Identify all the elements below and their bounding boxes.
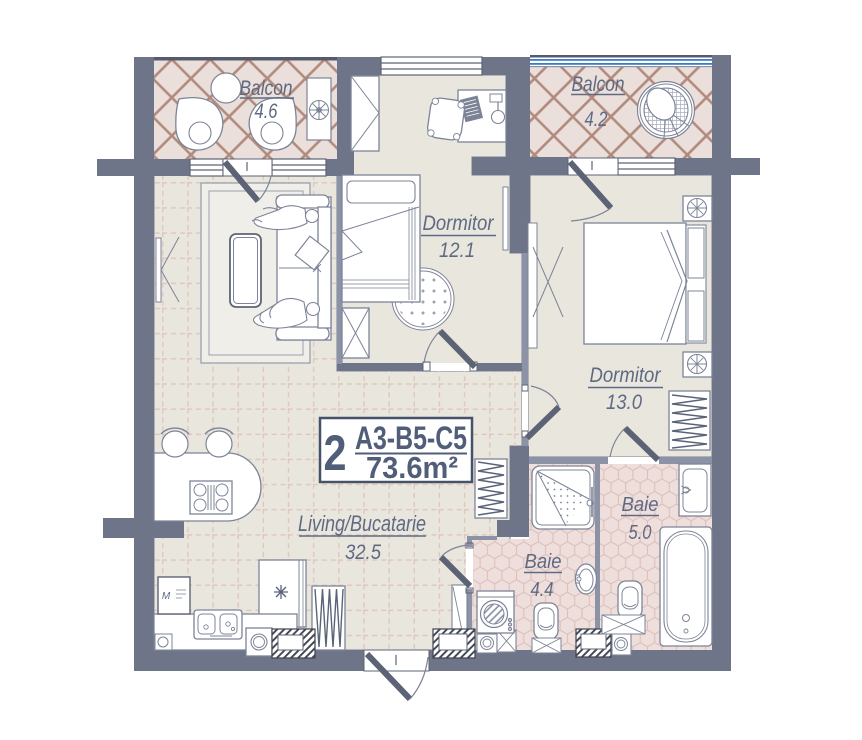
svg-text:73.6m²: 73.6m²	[366, 450, 458, 485]
svg-text:Dormitor: Dormitor	[423, 212, 495, 235]
svg-text:Dormitor: Dormitor	[590, 364, 662, 387]
svg-text:Balcon: Balcon	[240, 77, 293, 100]
svg-text:4.6: 4.6	[255, 100, 278, 123]
svg-text:13.0: 13.0	[606, 391, 642, 414]
svg-text:12.1: 12.1	[439, 239, 475, 262]
svg-text:Balcon: Balcon	[572, 73, 625, 96]
svg-text:5.0: 5.0	[629, 522, 652, 544]
svg-text:Baie: Baie	[622, 494, 659, 516]
svg-text:4.2: 4.2	[585, 108, 608, 131]
svg-text:M: M	[162, 591, 171, 602]
svg-text:4.4: 4.4	[531, 579, 554, 601]
svg-text:Living/Bucatarie: Living/Bucatarie	[298, 511, 426, 536]
svg-text:32.5: 32.5	[345, 541, 381, 564]
svg-text:2: 2	[324, 425, 347, 481]
svg-text:Baie: Baie	[525, 551, 562, 573]
